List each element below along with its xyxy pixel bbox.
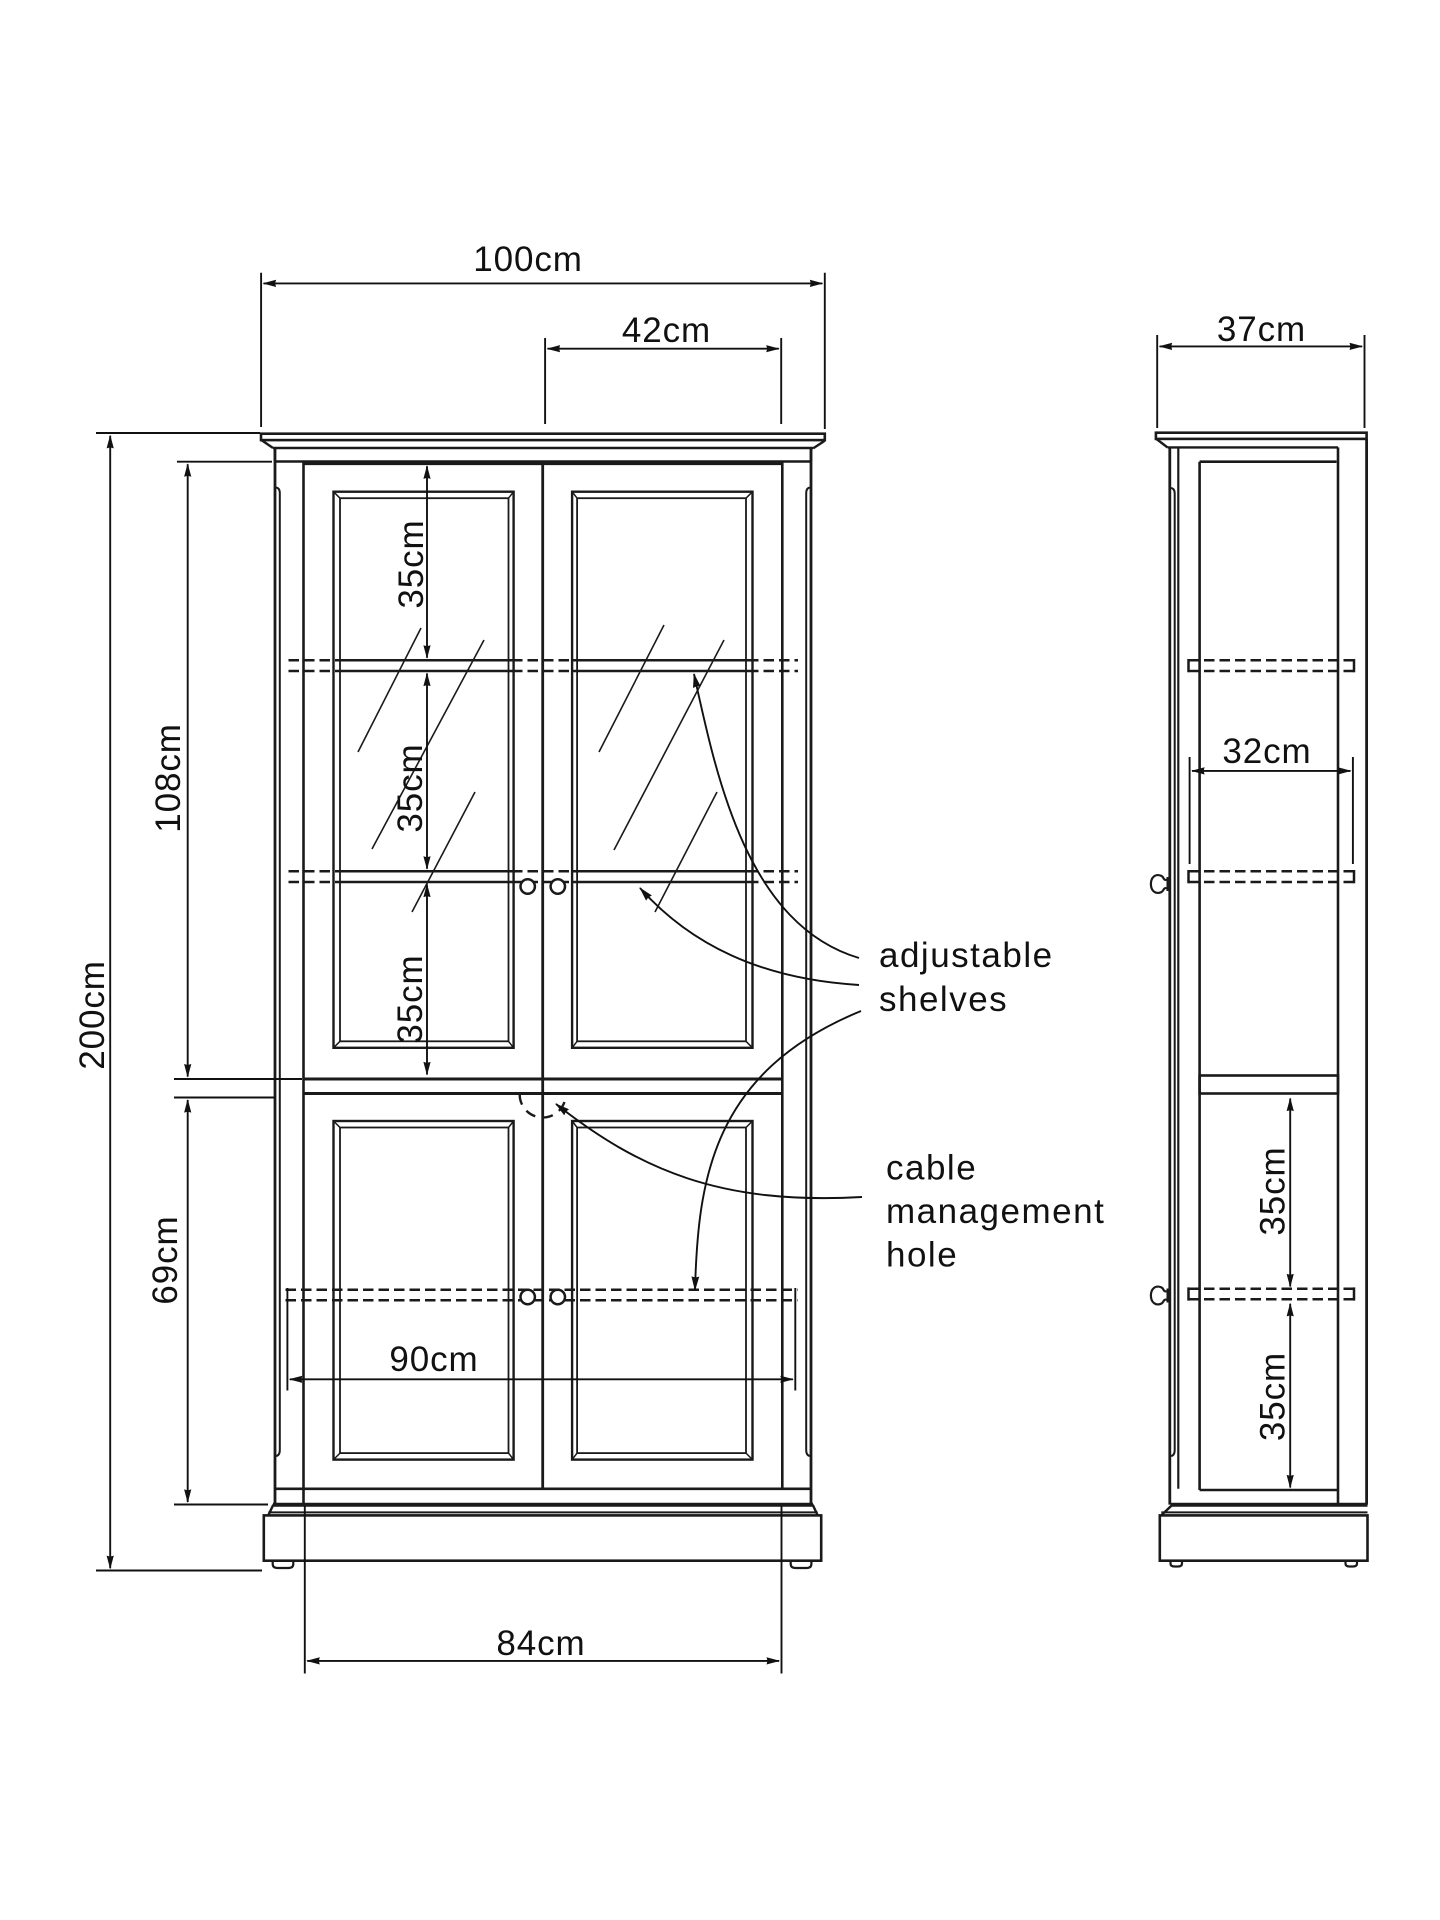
svg-text:management: management: [886, 1192, 1105, 1231]
svg-text:42cm: 42cm: [622, 311, 711, 350]
svg-text:32cm: 32cm: [1222, 732, 1311, 771]
svg-text:35cm: 35cm: [1254, 1352, 1293, 1441]
svg-text:37cm: 37cm: [1217, 310, 1306, 349]
svg-text:200cm: 200cm: [73, 960, 112, 1070]
svg-text:adjustable: adjustable: [879, 936, 1054, 975]
svg-text:35cm: 35cm: [1254, 1146, 1293, 1235]
svg-text:35cm: 35cm: [391, 954, 430, 1043]
svg-text:shelves: shelves: [879, 980, 1008, 1019]
svg-text:84cm: 84cm: [496, 1624, 585, 1663]
svg-text:cable: cable: [886, 1149, 977, 1188]
svg-text:hole: hole: [886, 1236, 958, 1275]
svg-text:90cm: 90cm: [389, 1340, 478, 1379]
svg-text:35cm: 35cm: [392, 519, 431, 608]
svg-text:35cm: 35cm: [391, 743, 430, 832]
svg-text:69cm: 69cm: [146, 1215, 185, 1304]
svg-text:100cm: 100cm: [473, 240, 583, 279]
svg-text:108cm: 108cm: [149, 723, 188, 833]
